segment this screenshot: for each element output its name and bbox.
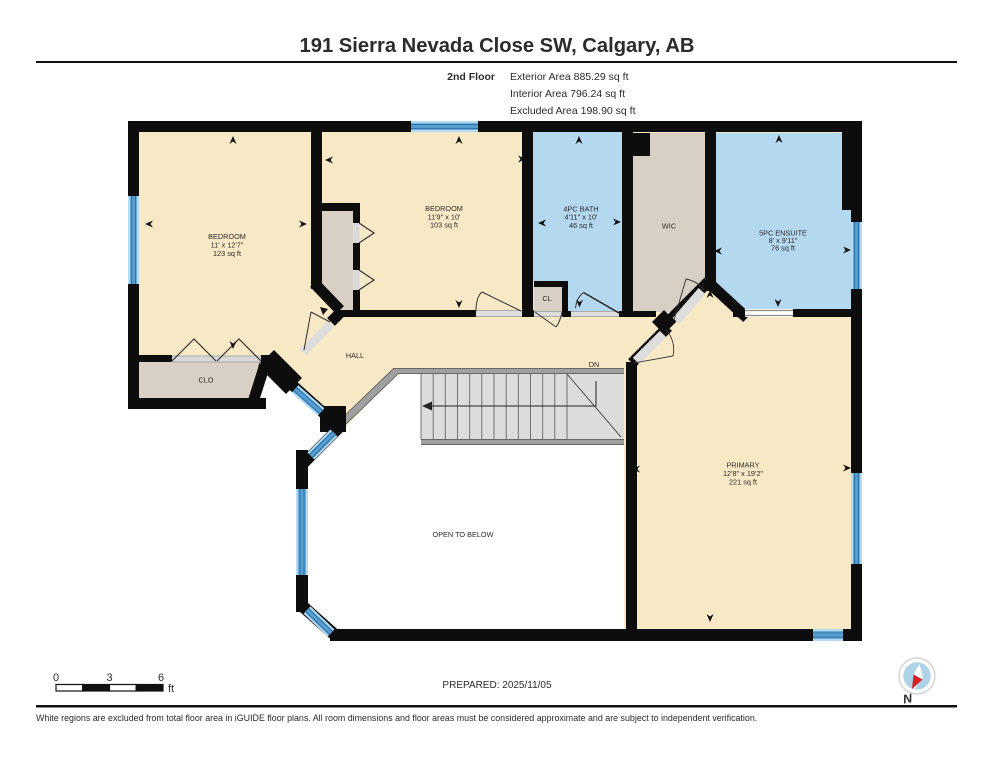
svg-text:CL: CL — [542, 294, 551, 303]
svg-text:6: 6 — [158, 672, 164, 684]
svg-text:2nd Floor: 2nd Floor — [447, 71, 495, 83]
svg-text:191 Sierra Nevada Close SW, Ca: 191 Sierra Nevada Close SW, Calgary, AB — [300, 35, 695, 57]
svg-text:ft: ft — [168, 683, 174, 695]
svg-text:0: 0 — [53, 672, 59, 684]
svg-text:HALL: HALL — [346, 351, 364, 360]
svg-text:Interior Area 796.24 sq ft: Interior Area 796.24 sq ft — [510, 88, 625, 100]
svg-text:76 sq ft: 76 sq ft — [771, 244, 795, 253]
svg-text:Excluded Area 198.90 sq ft: Excluded Area 198.90 sq ft — [510, 105, 636, 117]
svg-text:3: 3 — [106, 672, 112, 684]
svg-text:CLO: CLO — [198, 376, 213, 385]
svg-text:WIC: WIC — [662, 222, 676, 231]
svg-text:OPEN TO BELOW: OPEN TO BELOW — [433, 530, 494, 539]
svg-text:DN: DN — [589, 360, 600, 369]
svg-text:123 sq ft: 123 sq ft — [213, 249, 241, 258]
svg-text:White regions are excluded fro: White regions are excluded from total fl… — [36, 713, 757, 723]
svg-text:PREPARED: 2025/11/05: PREPARED: 2025/11/05 — [442, 680, 552, 691]
svg-text:221 sq ft: 221 sq ft — [729, 478, 757, 487]
svg-text:46 sq ft: 46 sq ft — [569, 221, 593, 230]
svg-text:103 sq ft: 103 sq ft — [430, 221, 458, 230]
svg-text:Exterior Area 885.29 sq ft: Exterior Area 885.29 sq ft — [510, 71, 629, 83]
